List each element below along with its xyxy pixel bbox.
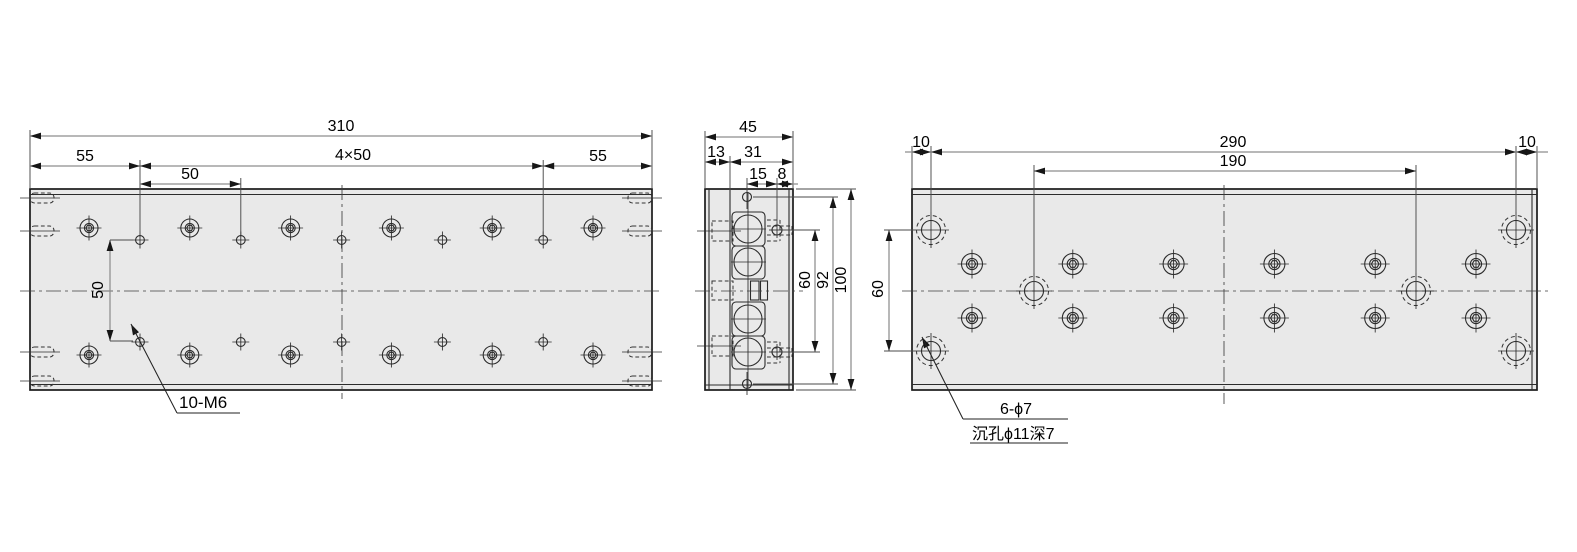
- dim-label: 15: [749, 166, 767, 183]
- dimension-arrow: [812, 341, 819, 352]
- dimension-arrow: [730, 159, 741, 166]
- technical-drawing: 310554×5055505010-M645133115860921001029…: [0, 0, 1577, 552]
- dim-label: 100: [833, 267, 850, 294]
- dim-label: 10: [1518, 134, 1536, 151]
- dim-label: 55: [76, 148, 94, 165]
- dim-label: 45: [739, 119, 757, 136]
- dimension-arrow: [848, 189, 855, 200]
- dimension-arrow: [543, 163, 554, 170]
- dim-label: 92: [815, 271, 832, 289]
- dimension-arrow: [230, 181, 241, 188]
- drawing-canvas: 310554×5055505010-M645133115860921001029…: [0, 0, 1577, 552]
- dimension-arrow: [1034, 168, 1045, 175]
- dimension-arrow: [782, 159, 793, 166]
- dimension-arrow: [886, 230, 893, 241]
- dim-label: 290: [1220, 134, 1247, 151]
- dim-label: 31: [744, 144, 762, 161]
- dimension-arrow: [830, 373, 837, 384]
- dim-label: 190: [1220, 153, 1247, 170]
- dimension-arrow: [129, 163, 140, 170]
- dimension-arrow: [1405, 168, 1416, 175]
- dimension-arrow: [1505, 149, 1516, 156]
- dimension-arrow: [782, 134, 793, 141]
- dimension-arrow: [641, 133, 652, 140]
- dim-label: 13: [707, 144, 725, 161]
- dim-label: 60: [797, 271, 814, 289]
- dim-label: 6-ϕ7: [1000, 401, 1032, 418]
- dimension-arrow: [641, 163, 652, 170]
- dimension-arrow: [848, 379, 855, 390]
- dim-label: 沉孔ϕ11深7: [972, 425, 1055, 443]
- dim-label: 8: [778, 166, 787, 183]
- side-view: 4513311586092100: [695, 119, 856, 395]
- dimension-arrow: [532, 163, 543, 170]
- dim-label: 10: [912, 134, 930, 151]
- plate-outline: [912, 189, 1537, 390]
- dim-label: 10-M6: [179, 393, 227, 412]
- dim-label: 310: [328, 118, 355, 135]
- dim-label: 60: [870, 280, 887, 298]
- dimension-arrow: [931, 149, 942, 156]
- dimension-arrow: [705, 134, 716, 141]
- dimension-arrow: [30, 133, 41, 140]
- dim-label: 50: [90, 281, 107, 299]
- dimension-arrow: [30, 163, 41, 170]
- dim-label: 50: [181, 166, 199, 183]
- front-view: 310554×5055505010-M6: [20, 118, 662, 413]
- plate-outline: [705, 189, 793, 390]
- dimension-arrow: [140, 163, 151, 170]
- dimension-arrow: [766, 181, 777, 188]
- dimension-arrow: [830, 197, 837, 208]
- dim-label: 4×50: [335, 147, 371, 164]
- dimension-arrow: [886, 340, 893, 351]
- dimension-arrow: [140, 181, 151, 188]
- rear-view: 1029010190606-ϕ7沉孔ϕ11深7: [870, 134, 1548, 443]
- dimension-arrow: [812, 230, 819, 241]
- plate-outline: [30, 189, 652, 390]
- dim-label: 55: [589, 148, 607, 165]
